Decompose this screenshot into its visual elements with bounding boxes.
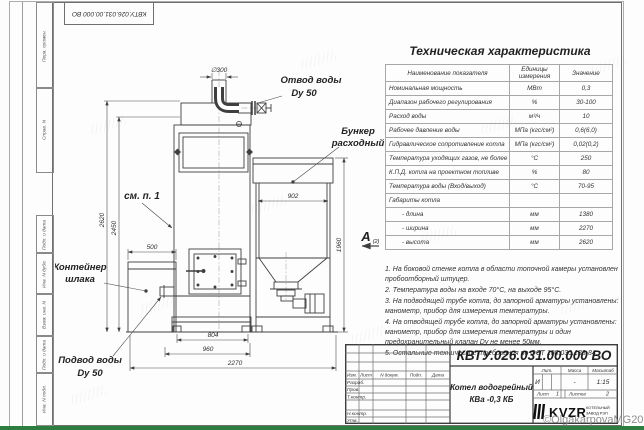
label-inlet-line2: Dy 50 (77, 368, 103, 379)
kvzr-sub1: КОТЕЛЬНЫЙ (586, 406, 610, 410)
spec-row: Температура уходящих газов, не более°С25… (386, 152, 613, 166)
tb-row-nkontr: Н.контр. (347, 411, 367, 417)
label-slag-line1: Контейнер (55, 262, 107, 273)
dim-804: 804 (208, 332, 219, 339)
spec-cell: Номинальная мощность (386, 82, 510, 96)
spec-cell: - ширина (386, 222, 510, 236)
spec-cell: м³/ч (510, 110, 560, 124)
spec-row: Рабочее давление водыМПа (кгс/см²)0,6(6,… (386, 124, 613, 138)
tb-row-prov: Пров. (347, 387, 360, 393)
spec-header-value: Значение (560, 65, 613, 82)
spec-cell: % (510, 96, 560, 110)
spec-table: Наименование показателя Единицы измерени… (385, 64, 613, 250)
spec-cell: °С (510, 152, 560, 166)
label-hopper-line1: Бункер (341, 126, 375, 137)
spec-row: Номинальная мощностьМВт0,3 (386, 82, 613, 96)
spec-cell: К.П.Д. котла на проектном топливе (386, 166, 510, 180)
label-inlet-line1: Подвод воды (58, 355, 122, 366)
blueprint-sheet: КВТУ.026.031.00.000 ВО Перв. примен. Спр… (0, 0, 644, 430)
tb-sheets-label: Листов (568, 392, 586, 397)
tb-lit-value: И (535, 379, 540, 386)
sidebox-inv-podl: Инв. N подл. (36, 372, 54, 426)
dim-500: 500 (147, 244, 158, 251)
spec-cell: Температура воды (Вход/выход) (386, 180, 510, 194)
tb-row-razrab: Разраб. (347, 380, 364, 386)
label-see-note: см. п. 1 (124, 191, 160, 202)
tb-row-utv: Утв. (347, 418, 358, 424)
dim-d300: ∅300 (211, 67, 228, 74)
spec-row: Температура воды (Вход/выход)°С70-95 (386, 180, 613, 194)
note-item: 2. Температура воды на входе 70°С, на вы… (385, 286, 637, 296)
spec-cell: Габариты котла (386, 194, 510, 208)
tb-sheets-value: 2 (605, 392, 609, 398)
spec-cell: 1380 (560, 208, 613, 222)
spec-header-row: Наименование показателя Единицы измерени… (386, 65, 613, 82)
dim-2450: 2450 (111, 220, 118, 236)
spec-cell: °С (510, 180, 560, 194)
spec-cell: 250 (560, 152, 613, 166)
spec-cell: Рабочее давление воды (386, 124, 510, 138)
tb-col-list: Лист (359, 373, 372, 378)
spec-row: - высотамм2620 (386, 236, 613, 250)
label-hopper-line2: расходный (331, 138, 385, 149)
sidebox-sprav-n: Справ. N (36, 87, 54, 173)
spec-cell: 80 (560, 166, 613, 180)
spec-cell: 30-100 (560, 96, 613, 110)
sidebox-podp-data-1: Подп. и дата (36, 215, 54, 254)
tb-product-line1: Котел водогрейный (450, 383, 533, 392)
view-a-label: A (360, 229, 370, 244)
spec-cell (510, 194, 560, 208)
spec-table-title: Техническая характеристика (388, 44, 612, 58)
spec-cell: 70-95 (560, 180, 613, 194)
spec-cell: - высота (386, 236, 510, 250)
tb-col-izm: Изм. (347, 373, 357, 378)
photo-watermark: ©OlgakarpovaMG2021 (543, 414, 644, 426)
tb-scale-label: Масштаб (592, 368, 614, 373)
tb-lit-label: Лит. (541, 368, 553, 373)
dim-2270: 2270 (227, 360, 243, 367)
tb-sheet-label: Лист (536, 392, 549, 397)
dim-2620: 2620 (99, 212, 106, 228)
bottom-green-bar (0, 426, 644, 430)
spec-cell: МВт (510, 82, 560, 96)
spec-cell: % (510, 166, 560, 180)
spec-cell: 10 (560, 110, 613, 124)
tb-mass-label: Масса (568, 368, 582, 373)
tb-doc-number: КВТУ.026.031.00.000 ВО (457, 348, 612, 363)
spec-cell: 2270 (560, 222, 613, 236)
spec-row: К.П.Д. котла на проектном топливе%80 (386, 166, 613, 180)
spec-header-units: Единицы измерения (510, 65, 560, 82)
tb-mass-value: - (573, 379, 576, 386)
top-stamp: КВТУ.026.031.00.000 ВО (64, 2, 154, 25)
spec-cell: мм (510, 208, 560, 222)
spec-row: Расход водым³/ч10 (386, 110, 613, 124)
spec-cell: МПа (кгс/см²) (510, 124, 560, 138)
sidebox-podp-data-2: Подп. и дата (36, 335, 54, 374)
tb-col-podp: Подп. (410, 373, 422, 378)
spec-row: - длинамм1380 (386, 208, 613, 222)
boiler-drawing: ∅300 2620 2450 500 902 1960 804 960 2270… (55, 35, 385, 382)
spec-cell: МПа (кгс/см²) (510, 138, 560, 152)
spec-row: - ширинамм2270 (386, 222, 613, 236)
spec-cell: Температура уходящих газов, не более (386, 152, 510, 166)
note-item: 1. На боковой стенке котла в области топ… (385, 265, 637, 285)
spec-cell (560, 194, 613, 208)
sheet-cut-line (22, 1, 23, 426)
tb-product-line2: КВа -0,3 КБ (470, 395, 514, 404)
tb-scale-value: 1:15 (597, 379, 610, 386)
spec-cell: мм (510, 222, 560, 236)
dim-1960: 1960 (336, 237, 343, 252)
sidebox-perv-primen: Перв. примен. (36, 2, 54, 89)
top-stamp-number: КВТУ.026.031.00.000 ВО (72, 10, 146, 17)
spec-cell: 2620 (560, 236, 613, 250)
tb-col-ndokum: N докум. (380, 373, 399, 378)
view-a-sub: (2) (373, 239, 380, 245)
label-outlet-line1: Отвод воды (281, 75, 342, 86)
sidebox-inv-dubl: Инв. N дубл. (36, 252, 54, 295)
label-outlet-line2: Dy 50 (291, 88, 317, 99)
spec-row: Габариты котла (386, 194, 613, 208)
spec-cell: - длина (386, 208, 510, 222)
tb-col-data: Дата (431, 373, 445, 378)
spec-row: Гидравлическое сопротивление котлаМПа (к… (386, 138, 613, 152)
spec-cell: 0,3 (560, 82, 613, 96)
title-block: Изм. Лист N докум. Подп. Дата Разраб. Пр… (345, 344, 618, 424)
spec-cell: 0,6(6,0) (560, 124, 613, 138)
spec-cell: мм (510, 236, 560, 250)
tb-row-tkontr: Т.контр. (347, 395, 366, 401)
label-slag-line2: шлака (65, 274, 95, 285)
dim-960: 960 (203, 346, 214, 353)
spec-cell: Расход воды (386, 110, 510, 124)
sheet-edge-left (9, 1, 10, 426)
spec-cell: Диапазон рабочего регулирования (386, 96, 510, 110)
tb-sheet-value: 1 (556, 392, 559, 398)
spec-cell: 0,02(0,2) (560, 138, 613, 152)
note-item: 3. На подводящей трубе котла, до запорно… (385, 297, 637, 317)
spec-cell: Гидравлическое сопротивление котла (386, 138, 510, 152)
dim-902: 902 (288, 193, 299, 200)
sidebox-vzam-inv: Взам. инв. N (36, 293, 54, 337)
spec-row: Диапазон рабочего регулирования%30-100 (386, 96, 613, 110)
spec-header-name: Наименование показателя (386, 65, 510, 82)
